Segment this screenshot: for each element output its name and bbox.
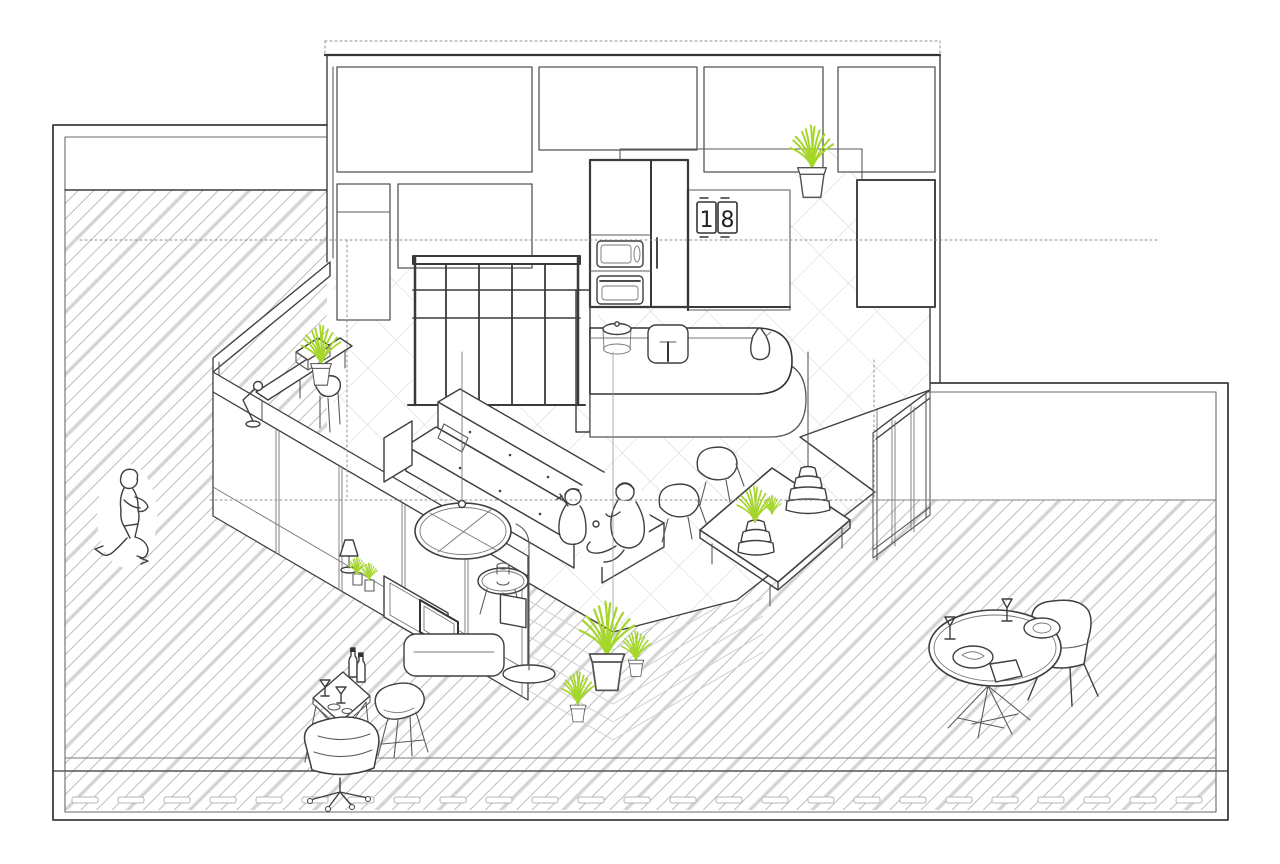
tv-console [404, 634, 504, 676]
isometric-apartment-illustration: 1 8 [0, 0, 1280, 864]
oven-column [590, 160, 688, 307]
bowl-2 [342, 709, 352, 714]
sink [648, 325, 688, 363]
wall-clock: 1 8 [697, 198, 737, 237]
drawing-canvas: 1 8 [0, 0, 1280, 864]
shelving-unit [408, 256, 585, 405]
clock-digit-right: 8 [721, 208, 735, 233]
mini-pot-1 [353, 574, 362, 585]
pendant-bulb [459, 501, 466, 508]
clock-digit-left: 1 [700, 208, 714, 233]
mini-pot-2 [365, 580, 374, 591]
right-room-block [857, 180, 935, 307]
bowl-1 [328, 704, 340, 710]
